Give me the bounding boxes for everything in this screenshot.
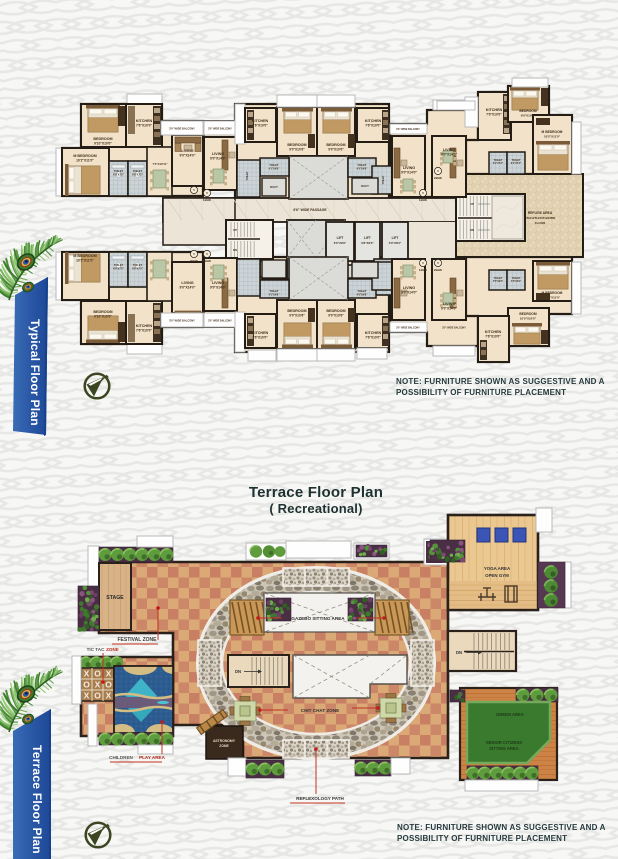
svg-text:DUCT: DUCT [361, 184, 369, 188]
svg-text:KITCHEN: KITCHEN [365, 119, 382, 123]
svg-text:8TH/12TH/16TH/23RD: 8TH/12TH/16TH/23RD [525, 216, 556, 220]
svg-text:9'0"X14'0": 9'0"X14'0" [210, 286, 226, 290]
svg-text:PLAY AREA: PLAY AREA [139, 755, 166, 760]
svg-text:7'6"X10'0": 7'6"X10'0" [252, 336, 268, 340]
svg-text:LIVING: LIVING [212, 281, 224, 285]
svg-text:4'5"X6'6": 4'5"X6'6" [357, 293, 369, 296]
svg-text:9'0"X14'0": 9'0"X14'0" [401, 291, 417, 295]
svg-text:9'0"X14'0": 9'0"X14'0" [210, 157, 226, 161]
svg-text:LIVING: LIVING [443, 148, 455, 152]
svg-text:6'8"X8'3": 6'8"X8'3" [361, 241, 374, 245]
svg-text:TOILET: TOILET [269, 289, 279, 293]
svg-text:7'5"X4'0": 7'5"X4'0" [493, 280, 503, 283]
svg-text:KITCHEN: KITCHEN [136, 119, 153, 123]
svg-text:FESTIVAL ZONE: FESTIVAL ZONE [118, 637, 158, 643]
svg-text:7'6"X10'0": 7'6"X10'0" [252, 124, 268, 128]
svg-text:2BHK: 2BHK [190, 195, 199, 199]
svg-text:X: X [84, 690, 90, 700]
svg-text:TIC TAC: TIC TAC [87, 647, 105, 652]
svg-text:DN: DN [235, 669, 241, 674]
svg-text:TOILET: TOILET [357, 289, 367, 293]
svg-text:6'6"X9'6": 6'6"X9'6" [334, 241, 347, 245]
svg-text:7'6"X10'0": 7'6"X10'0" [486, 113, 502, 117]
svg-text:9'0"X14'0": 9'0"X14'0" [441, 307, 457, 311]
svg-text:KITCHEN: KITCHEN [252, 119, 269, 123]
svg-text:GAZEBO SITTING AREA: GAZEBO SITTING AREA [291, 616, 345, 621]
svg-text:3'0" WIDE BALCONY: 3'0" WIDE BALCONY [442, 327, 466, 330]
svg-text:4'5"X6'6": 4'5"X6'6" [357, 167, 369, 170]
svg-text:10'2"X11'0": 10'2"X11'0" [76, 259, 94, 263]
svg-text:7'5"X4'0": 7'5"X4'0" [511, 280, 521, 283]
svg-text:STAGE: STAGE [106, 595, 124, 601]
svg-text:M BEDROOM: M BEDROOM [542, 130, 563, 134]
svg-text:GREEN AREA: GREEN AREA [496, 712, 524, 717]
svg-text:7'6"X10'0": 7'6"X10'0" [136, 329, 152, 333]
svg-text:O: O [94, 690, 101, 700]
svg-text:CHILDREN: CHILDREN [109, 755, 133, 760]
svg-text:UP: UP [233, 228, 237, 232]
svg-text:LIVING: LIVING [443, 302, 455, 306]
svg-text:REFUGE AREA: REFUGE AREA [528, 211, 553, 215]
svg-text:5'9"X8'3": 5'9"X8'3" [389, 241, 402, 245]
svg-text:CHIT CHAT ZONE: CHIT CHAT ZONE [301, 708, 339, 713]
svg-text:TOILET: TOILET [381, 175, 385, 185]
svg-text:7'6"X10'0": 7'6"X10'0" [365, 336, 381, 340]
svg-text:9'0"X14'0": 9'0"X14'0" [179, 154, 195, 158]
svg-text:3'0" WIDE BALCONY: 3'0" WIDE BALCONY [208, 128, 232, 131]
svg-text:BEDROOM: BEDROOM [519, 109, 536, 113]
svg-text:2BHK: 2BHK [434, 176, 443, 180]
svg-text:O: O [83, 679, 90, 689]
svg-text:BEDROOM: BEDROOM [326, 143, 345, 147]
svg-text:KITCHEN: KITCHEN [252, 331, 269, 335]
svg-text:10'2"X11'0": 10'2"X11'0" [544, 134, 561, 138]
svg-text:6'1"X7'2": 6'1"X7'2" [511, 162, 521, 165]
svg-text:UP: UP [470, 202, 474, 206]
svg-text:OPEN GYM: OPEN GYM [485, 573, 509, 578]
svg-text:3'0" WIDE BALCONY: 3'0" WIDE BALCONY [208, 320, 232, 323]
svg-text:KITCHEN: KITCHEN [365, 331, 382, 335]
svg-text:3'0" WIDE BALCONY: 3'0" WIDE BALCONY [396, 327, 420, 330]
svg-text:LIVING: LIVING [181, 149, 193, 153]
svg-text:Terrace Floor Plan: Terrace Floor Plan [30, 745, 44, 854]
svg-text:LIFT: LIFT [392, 236, 399, 240]
svg-text:LIVING: LIVING [212, 152, 224, 156]
svg-text:3'0" WIDE BALCONY: 3'0" WIDE BALCONY [169, 127, 195, 131]
svg-text:ASTRONOMY: ASTRONOMY [213, 739, 236, 743]
svg-text:7'0"X10'11": 7'0"X10'11" [152, 162, 168, 166]
svg-text:6'6" WIDE PASSAGE: 6'6" WIDE PASSAGE [293, 208, 327, 212]
svg-text:ZONE: ZONE [219, 744, 229, 748]
svg-text:6'1"X7'2": 6'1"X7'2" [493, 162, 503, 165]
svg-text:REFLEXOLOGY PATH: REFLEXOLOGY PATH [296, 796, 344, 801]
svg-text:1BHK: 1BHK [203, 198, 212, 202]
svg-text:LIFT: LIFT [364, 236, 371, 240]
svg-text:9'0"X10'6": 9'0"X10'6" [328, 314, 344, 318]
svg-text:O: O [105, 679, 112, 689]
svg-text:7'6"X10'0": 7'6"X10'0" [485, 335, 501, 339]
svg-text:9'10"X10'0": 9'10"X10'0" [94, 315, 112, 319]
svg-text:7'6"X10'0": 7'6"X10'0" [365, 124, 381, 128]
svg-text:9'0"X10'6": 9'0"X10'6" [289, 314, 305, 318]
svg-text:10'2"X11'0": 10'2"X11'0" [76, 159, 94, 163]
svg-text:9'0"X14'0": 9'0"X14'0" [179, 286, 195, 290]
svg-text:KITCHEN: KITCHEN [136, 324, 153, 328]
svg-text:O: O [94, 668, 101, 678]
svg-text:TOILET: TOILET [133, 169, 143, 173]
svg-text:1BHK: 1BHK [419, 198, 428, 202]
svg-text:M BEDROOM: M BEDROOM [73, 154, 96, 158]
svg-text:X: X [106, 690, 112, 700]
svg-text:6'8"X7'2": 6'8"X7'2" [132, 173, 144, 176]
svg-text:LIVING: LIVING [181, 281, 193, 285]
svg-text:DUCT: DUCT [270, 185, 278, 189]
svg-text:ZONE: ZONE [106, 647, 119, 652]
svg-text:9'10"X10'0": 9'10"X10'0" [94, 142, 112, 146]
svg-text:9'0"X10'6": 9'0"X10'6" [289, 148, 305, 152]
svg-text:9'0"X14'0": 9'0"X14'0" [401, 171, 417, 175]
svg-text:X: X [95, 679, 101, 689]
svg-text:SITTING AREA: SITTING AREA [489, 746, 518, 751]
svg-text:TOILET: TOILET [269, 163, 279, 167]
svg-text:DN: DN [233, 248, 237, 252]
svg-text:BEDROOM: BEDROOM [519, 312, 536, 316]
svg-text:BEDROOM: BEDROOM [93, 137, 112, 141]
svg-text:10'0"X10'0": 10'0"X10'0" [520, 316, 537, 320]
svg-text:9'0"X10'6": 9'0"X10'6" [328, 148, 344, 152]
svg-text:LIVING: LIVING [403, 286, 415, 290]
svg-text:TOILET: TOILET [114, 263, 124, 267]
svg-text:LIFT: LIFT [337, 236, 344, 240]
svg-text:DN: DN [470, 228, 474, 232]
svg-text:9'0"X14'0": 9'0"X14'0" [441, 153, 457, 157]
svg-text:BEDROOM: BEDROOM [287, 143, 306, 147]
svg-text:BEDROOM: BEDROOM [287, 309, 306, 313]
svg-text:4'1"X6'6": 4'1"X6'6" [269, 167, 281, 170]
svg-text:4'1"X6'6": 4'1"X6'6" [269, 293, 281, 296]
svg-text:X: X [84, 668, 90, 678]
svg-text:KITCHEN: KITCHEN [486, 108, 503, 112]
svg-text:TOILET: TOILET [114, 169, 124, 173]
svg-text:FLOOR: FLOOR [535, 221, 546, 225]
svg-text:6'8"X7'2": 6'8"X7'2" [113, 267, 125, 270]
svg-text:BEDROOM: BEDROOM [93, 310, 112, 314]
svg-text:6'8"X7'2": 6'8"X7'2" [113, 173, 125, 176]
svg-text:6'8"X7'2": 6'8"X7'2" [132, 267, 144, 270]
svg-text:DN: DN [456, 650, 462, 655]
svg-text:7'6"X10'0": 7'6"X10'0" [136, 124, 152, 128]
svg-text:3'0" WIDE BALCONY: 3'0" WIDE BALCONY [396, 128, 420, 131]
svg-text:Typical Floor Plan: Typical Floor Plan [28, 319, 42, 426]
svg-text:BEDROOM: BEDROOM [326, 309, 345, 313]
svg-text:2BHK: 2BHK [190, 259, 199, 263]
svg-text:LIVING: LIVING [403, 166, 415, 170]
svg-text:3'0" WIDE BALCONY: 3'0" WIDE BALCONY [169, 319, 195, 323]
svg-text:1BHK: 1BHK [203, 259, 212, 263]
svg-text:TOILET: TOILET [133, 263, 143, 267]
svg-text:KITCHEN: KITCHEN [485, 330, 502, 334]
svg-text:1BHK: 1BHK [419, 268, 428, 272]
svg-text:X: X [106, 668, 112, 678]
svg-text:2BHK: 2BHK [434, 268, 443, 272]
svg-text:TOILET: TOILET [245, 171, 249, 181]
svg-text:TOILET: TOILET [357, 163, 367, 167]
svg-text:M BEDROOM: M BEDROOM [73, 254, 96, 258]
svg-text:SENIOR CITIZENS: SENIOR CITIZENS [486, 740, 523, 745]
svg-text:YOGA AREA: YOGA AREA [484, 566, 511, 571]
